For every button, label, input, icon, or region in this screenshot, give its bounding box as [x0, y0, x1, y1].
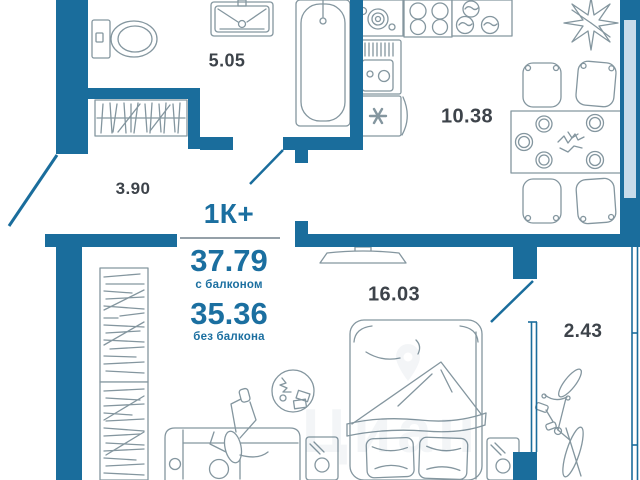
area-without-balcony-label: без балкона	[168, 331, 290, 343]
sink-icon	[211, 0, 273, 36]
room-area-balcony: 2.43	[564, 321, 603, 343]
bathroom-door-swing	[250, 150, 283, 184]
fridge-icon	[356, 96, 407, 136]
apartment-summary: 1К+ 37.79 с балконом 35.36 без балкона	[168, 200, 290, 350]
room-area-living-room: 16.03	[368, 284, 420, 307]
svg-text:Циан: Циан	[302, 397, 481, 466]
toilet-icon	[92, 20, 157, 58]
coat-rack-icon	[95, 100, 187, 136]
summary-divider	[180, 237, 280, 239]
stove-icon	[404, 0, 452, 37]
area-without-balcony: 35.36	[168, 298, 290, 331]
chair-icon	[576, 178, 617, 225]
area-with-balcony: 37.79	[168, 245, 290, 278]
room-area-hallway: 3.90	[116, 179, 151, 199]
chair-icon	[575, 60, 617, 107]
wardrobe-icon	[100, 268, 148, 480]
window	[624, 20, 636, 198]
dining-table-icon	[511, 111, 623, 173]
floor-plan-drawing: Циан	[0, 0, 640, 480]
bathtub-icon	[296, 0, 350, 126]
kitchen-sink-icon	[452, 0, 512, 36]
apartment-type: 1К+	[168, 200, 290, 228]
chair-icon	[523, 179, 561, 223]
balcony-door-swing	[491, 281, 533, 322]
balcony-glazing	[528, 247, 638, 480]
room-area-kitchen: 10.38	[441, 106, 493, 129]
floor-plan: Циан 5.05 10.38 3.90 16.03 2.43 1К+ 37.7…	[0, 0, 640, 480]
bicycle-icon	[535, 366, 587, 479]
tv-icon	[320, 247, 406, 263]
area-with-balcony-label: с балконом	[168, 279, 290, 291]
burner-icon	[357, 0, 403, 36]
chair-icon	[523, 63, 561, 107]
plant-icon	[564, 0, 618, 50]
entrance-door-swing	[9, 155, 57, 226]
room-area-bathroom: 5.05	[209, 51, 246, 72]
